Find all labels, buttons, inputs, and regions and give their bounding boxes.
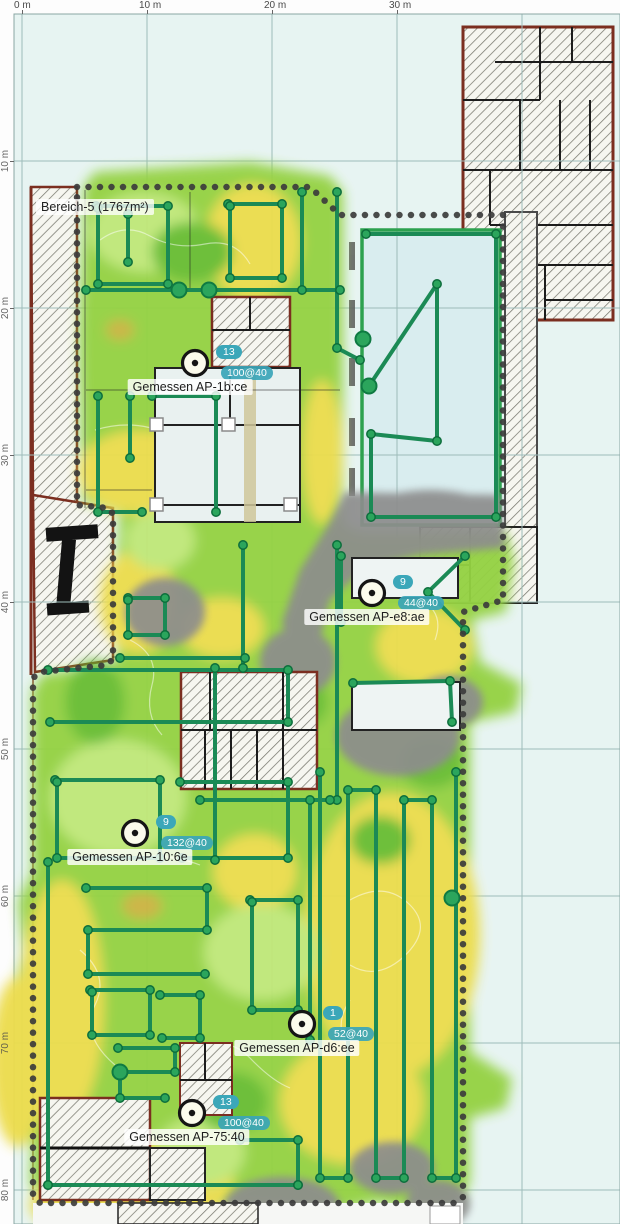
ruler-tick [10, 308, 14, 309]
ap-marker-icon[interactable] [123, 821, 148, 846]
ruler-tick [22, 10, 23, 14]
ap-channel-badge[interactable]: 13 [213, 1095, 239, 1109]
ruler-tick [10, 455, 14, 456]
ap-measurement-badge[interactable]: 100@40 [221, 366, 273, 380]
ap-marker-icon[interactable] [183, 351, 208, 376]
ruler-tick [10, 161, 14, 162]
ruler-top-label: 20 m [264, 0, 286, 11]
ruler-left-label: 50 m [0, 733, 14, 765]
ruler-left-label: 60 m [0, 880, 14, 912]
ap-marker-icon[interactable] [290, 1012, 315, 1037]
ap-name-label[interactable]: Gemessen AP-75:40 [124, 1129, 249, 1145]
ruler-tick [272, 10, 273, 14]
area-label[interactable]: Bereich-5 (1767m²) [36, 199, 154, 215]
map-viewport[interactable]: 0 m 10 m 20 m 30 m 10 m 20 m 30 m 40 m 5… [0, 0, 620, 1224]
ap-marker-icon[interactable] [180, 1101, 205, 1126]
ap-marker-icon[interactable] [360, 581, 385, 606]
ruler-tick [147, 10, 148, 14]
ap-name-label[interactable]: Gemessen AP-1b:ce [128, 379, 253, 395]
ruler-tick [397, 10, 398, 14]
ap-measurement-badge[interactable]: 100@40 [218, 1116, 270, 1130]
ap-measurement-badge[interactable]: 44@40 [398, 596, 444, 610]
ap-measurement-badge[interactable]: 52@40 [328, 1027, 374, 1041]
ap-name-label[interactable]: Gemessen AP-10:6e [67, 849, 192, 865]
ruler-left-label: 80 m [0, 1174, 14, 1206]
ruler-left-label: 70 m [0, 1027, 14, 1059]
ap-channel-badge[interactable]: 1 [323, 1006, 343, 1020]
ap-channel-badge[interactable]: 13 [216, 345, 242, 359]
ruler-top-label: 10 m [139, 0, 161, 11]
ap-channel-badge[interactable]: 9 [156, 815, 176, 829]
ap-measurement-badge[interactable]: 132@40 [161, 836, 213, 850]
ruler-tick [10, 602, 14, 603]
ap-channel-badge[interactable]: 9 [393, 575, 413, 589]
ap-name-label[interactable]: Gemessen AP-d6:ee [234, 1040, 359, 1056]
ruler-top-label: 30 m [389, 0, 411, 11]
ap-name-label[interactable]: Gemessen AP-e8:ae [304, 609, 429, 625]
